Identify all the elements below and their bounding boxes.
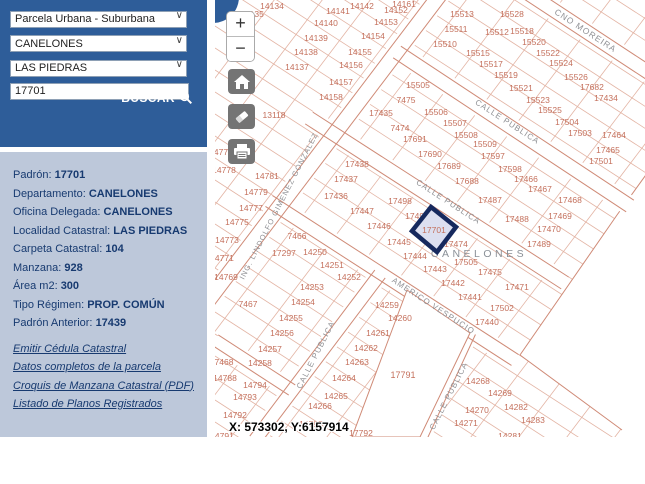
map-coordinates-readout: X: 573302, Y:6157914 <box>229 420 349 434</box>
buscar-button[interactable]: BUSCAR <box>121 91 193 105</box>
parcel-label: 15522 <box>536 48 560 58</box>
parcel-label: 15513 <box>450 9 474 19</box>
info-field: Área m2: 300 <box>0 277 207 296</box>
parcel-label: 17690 <box>418 149 442 159</box>
parcel-label: 17691 <box>403 134 427 144</box>
parcel-label: 14781 <box>255 171 279 181</box>
parcel-label: 14254 <box>291 297 315 307</box>
parcel-label: 14271 <box>454 418 478 428</box>
parcel-label: 14769 <box>215 272 238 282</box>
parcel-label: 14140 <box>314 18 338 28</box>
parcel-label: 7475 <box>397 95 416 105</box>
info-field: Carpeta Catastral: 104 <box>0 240 207 259</box>
parcel-label: 14779 <box>244 187 268 197</box>
parcel-label: 17475 <box>478 267 502 277</box>
parcel-label: 17446 <box>367 221 391 231</box>
parcel-label: 14153 <box>374 17 398 27</box>
buscar-label: BUSCAR <box>121 91 175 105</box>
parcel-label: 14778 <box>215 165 236 175</box>
parcel-label: 14152 <box>384 5 408 15</box>
parcel-type-select[interactable]: Parcela Urbana - Suburbana <box>10 11 187 28</box>
parcel-label: 15517 <box>479 59 503 69</box>
parcel-label: 15524 <box>549 58 573 68</box>
printer-icon <box>233 143 251 160</box>
parcel-label: 14138 <box>294 47 318 57</box>
parcel-label: 14261 <box>366 328 390 338</box>
parcel-label: 15510 <box>433 39 457 49</box>
parcel-label: 17443 <box>423 264 447 274</box>
cadastral-map[interactable]: 17791CNO MOREIRACALLE PUBLICACALLE PUBLI… <box>215 0 645 437</box>
locality-select[interactable]: LAS PIEDRAS <box>10 60 187 77</box>
parcel-label: 17436 <box>324 191 348 201</box>
measure-icon <box>233 108 251 126</box>
parcel-label: 17438 <box>345 159 369 169</box>
parcel-label: 17689 <box>437 161 461 171</box>
parcel-label: 14788 <box>215 373 237 383</box>
parcel-label: 14142 <box>350 1 374 11</box>
parcel-label: 15526 <box>564 72 588 82</box>
parcel-label: 16528 <box>500 9 524 19</box>
parcel-label: 14270 <box>465 405 489 415</box>
parcel-label: 17466 <box>514 174 538 184</box>
parcel-label: 14154 <box>361 31 385 41</box>
parcel-label: 17470 <box>537 224 561 234</box>
parcel-label: 17465 <box>596 145 620 155</box>
parcel-label: 15509 <box>473 139 497 149</box>
parcel-label: 17468 <box>558 195 582 205</box>
home-icon <box>233 74 251 90</box>
parcel-label: 17598 <box>498 164 522 174</box>
parcel-label: 7467 <box>239 299 258 309</box>
parcel-label: 17503 <box>568 128 592 138</box>
parcel-label: 17447 <box>350 206 374 216</box>
parcel-label: 14156 <box>339 60 363 70</box>
parcel-label: 17489 <box>527 239 551 249</box>
parcel-label: 7474 <box>391 123 410 133</box>
parcel-label: 14155 <box>348 47 372 57</box>
parcel-label: 17444 <box>403 251 427 261</box>
info-field: Oficina Delegada: CANELONES <box>0 203 207 222</box>
parcel-label: 17791 <box>390 370 415 380</box>
parcel-label: 14258 <box>248 358 272 368</box>
parcel-label: 17464 <box>602 130 626 140</box>
search-icon <box>179 91 193 105</box>
parcel-label: 14269 <box>488 388 512 398</box>
parcel-label: 14255 <box>279 313 303 323</box>
info-field: Padrón Anterior: 17439 <box>0 314 207 333</box>
parcel-label: 17467 <box>528 184 552 194</box>
parcel-label: 14265 <box>324 391 348 401</box>
parcel-label: 15521 <box>509 83 533 93</box>
parcel-label: 14257 <box>258 344 282 354</box>
parcel-label: 17440 <box>475 317 499 327</box>
zoom-control: + − <box>226 11 255 62</box>
zoom-out-button[interactable]: − <box>227 37 254 61</box>
parcel-label: 15507 <box>443 118 467 128</box>
parcel-label: 14157 <box>329 77 353 87</box>
area-label: CANELONES <box>431 248 527 260</box>
parcel-label: 14259 <box>375 300 399 310</box>
parcel-label: 14281 <box>498 431 522 437</box>
parcel-label: 14283 <box>521 415 545 425</box>
parcel-label: 17434 <box>594 93 618 103</box>
parcel-label: 14137 <box>285 62 309 72</box>
parcel-label: 17597 <box>481 151 505 161</box>
info-field: Localidad Catastral: LAS PIEDRAS <box>0 222 207 241</box>
parcel-label: 15506 <box>424 107 448 117</box>
parcel-label: 17471 <box>505 282 529 292</box>
parcel-label: 17505 <box>454 257 478 267</box>
parcel-label: 14251 <box>320 260 344 270</box>
info-field: Tipo Régimen: PROP. COMÚN <box>0 296 207 315</box>
map-canvas[interactable]: 17791CNO MOREIRACALLE PUBLICACALLE PUBLI… <box>215 0 645 437</box>
search-panel: Parcela Urbana - Suburbana ∨ CANELONES ∨… <box>0 0 207 147</box>
parcel-label: 17435 <box>369 108 393 118</box>
parcel-label: 14262 <box>354 343 378 353</box>
parcel-label: 14793 <box>233 392 257 402</box>
parcel-label: 17682 <box>580 82 604 92</box>
info-field: Manzana: 928 <box>0 259 207 278</box>
parcel-label: 14264 <box>332 373 356 383</box>
home-extent-button[interactable] <box>228 69 255 94</box>
parcel-label: 15520 <box>522 37 546 47</box>
parcel-label: 14253 <box>300 282 324 292</box>
parcel-label: 14282 <box>504 402 528 412</box>
parcel-label: 17445 <box>387 237 411 247</box>
parcel-label: 14250 <box>303 247 327 257</box>
parcel-label: 14773 <box>215 235 239 245</box>
parcel-label: 17488 <box>505 214 529 224</box>
selected-parcel-label: 17701 <box>422 225 446 235</box>
parcel-label: 14260 <box>388 313 412 323</box>
parcel-label: 15505 <box>406 80 430 90</box>
parcel-label: 14792 <box>223 410 247 420</box>
parcel-label: 17498 <box>388 196 412 206</box>
zoom-in-button[interactable]: + <box>227 12 254 37</box>
parcel-label: 17688 <box>455 176 479 186</box>
parcel-label: 17502 <box>490 303 514 313</box>
parcel-label: 14794 <box>243 380 267 390</box>
department-select[interactable]: CANELONES <box>10 35 187 52</box>
parcel-label: 14263 <box>345 357 369 367</box>
parcel-label: 15525 <box>538 105 562 115</box>
parcel-label: 14158 <box>319 92 343 102</box>
parcel-label: 17792 <box>349 428 373 437</box>
info-link[interactable]: Emitir Cédula Catastral <box>0 340 207 359</box>
parcel-info-panel: Padrón: 17701Departamento: CANELONESOfic… <box>0 152 207 437</box>
parcel-label: 17297 <box>272 248 296 258</box>
parcel-label: 14139 <box>304 33 328 43</box>
info-link[interactable]: Listado de Planos Registrados <box>0 395 207 414</box>
parcel-label: 17442 <box>441 278 465 288</box>
measure-tool-button[interactable] <box>228 104 255 129</box>
parcel-label: 17504 <box>555 117 579 127</box>
parcel-label: 15515 <box>466 48 490 58</box>
parcel-label: 15512 <box>485 27 509 37</box>
parcel-label: 14268 <box>466 376 490 386</box>
parcel-label: 13118 <box>262 110 285 120</box>
parcel-label: 17437 <box>334 174 358 184</box>
parcel-label: 14252 <box>337 272 361 282</box>
parcel-label: 14775 <box>225 217 249 227</box>
app-window: Parcela Urbana - Suburbana ∨ CANELONES ∨… <box>0 0 645 484</box>
info-link[interactable]: Croquis de Manzana Catastral (PDF) <box>0 377 207 396</box>
parcel-label: 7466 <box>288 231 307 241</box>
info-field: Departamento: CANELONES <box>0 185 207 204</box>
print-button[interactable] <box>228 139 255 164</box>
parcel-label: 17487 <box>478 195 502 205</box>
parcel-label: 14266 <box>308 401 332 411</box>
parcel-label: 17441 <box>458 292 482 302</box>
parcel-label: 17501 <box>589 156 613 166</box>
parcel-label: 14256 <box>270 328 294 338</box>
parcel-label: 15511 <box>444 24 467 34</box>
parcel-label: 15519 <box>494 70 518 80</box>
parcel-label: 17469 <box>548 211 572 221</box>
parcel-label: 7468 <box>215 357 234 367</box>
parcel-label: 15518 <box>510 26 534 36</box>
parcel-label: 14771 <box>215 253 234 263</box>
info-link[interactable]: Datos completos de la parcela <box>0 358 207 377</box>
info-field: Padrón: 17701 <box>0 166 207 185</box>
parcel-label: 15523 <box>526 95 550 105</box>
parcel-label: 14777 <box>239 203 263 213</box>
parcel-label: 14141 <box>326 6 350 16</box>
